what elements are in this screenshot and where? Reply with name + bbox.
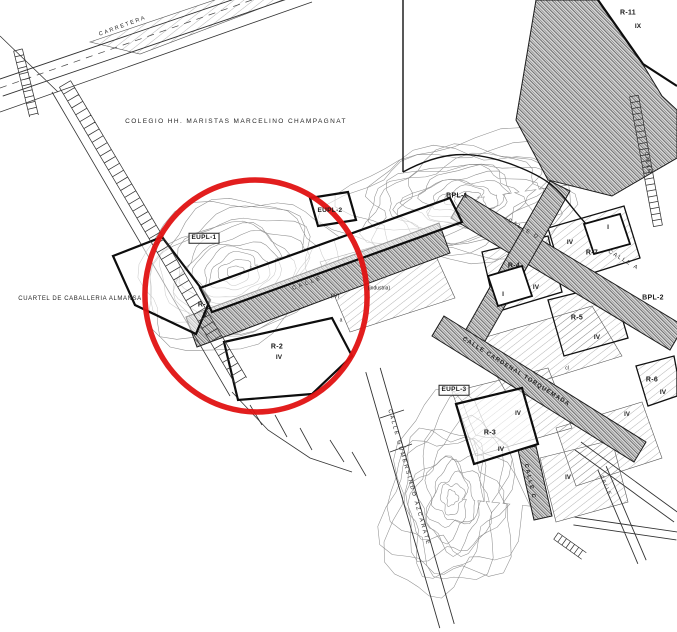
parcel-floors-r5: IV [594,335,600,342]
parcel-label-r1: R-1 [198,302,210,309]
site-label-colegio: COLEGIO HH. MARISTAS MARCELINO CHAMPAGNA… [125,119,347,126]
parcel-floors-r11: IX [635,24,641,31]
zone-label-cl: cl [565,367,569,372]
parcel-floors-r2: IV [276,355,282,362]
parcel-inner-r7: I [607,225,609,232]
parcel-floors-r1: V [203,313,207,320]
parcel-floors-r4: IV [533,285,539,292]
map-viewport: COLEGIO HH. MARISTAS MARCELINO CHAMPAGNA… [0,0,677,632]
parcel-label-r7: R-7 [586,250,598,257]
zone-label-industria: (industria) [368,287,390,292]
parcel-floors-r7: IV [567,240,573,247]
zone-label-iv-c: IV [565,475,571,481]
zone-label-iv-b: IV [624,412,630,418]
parcel-label-bpl1: BPL-1 [446,193,468,200]
parcel-label-eupl1: EUPL-1 [189,233,220,244]
parcel-label-eupl3: EUPL-3 [439,385,470,396]
parcel-label-r5: R-5 [571,315,583,322]
site-label-cuartel: CUARTEL DE CABALLERIA ALMANSA [18,296,141,302]
zone-label-iv-paren: (IV) [331,294,340,300]
parcel-label-r4: R-4 [508,263,520,270]
parcel-floors-r3: IV [498,447,504,454]
parcel-label-bpl2: BPL-2 [642,295,664,302]
parcel-label-eupl2: EUPL-2 [318,208,343,215]
parcel-inner-r4: I [502,292,504,299]
parcel-label-r6: R-6 [646,377,658,384]
parcel-label-r2: R-2 [271,344,283,351]
parcel-label-r11: R-11 [620,10,636,17]
parcel-floors-r6: IV [660,390,666,397]
zone-label-a: a [340,319,343,324]
parcel-label-r3: R-3 [484,430,496,437]
zone-label-iv-a: IV [515,411,521,417]
